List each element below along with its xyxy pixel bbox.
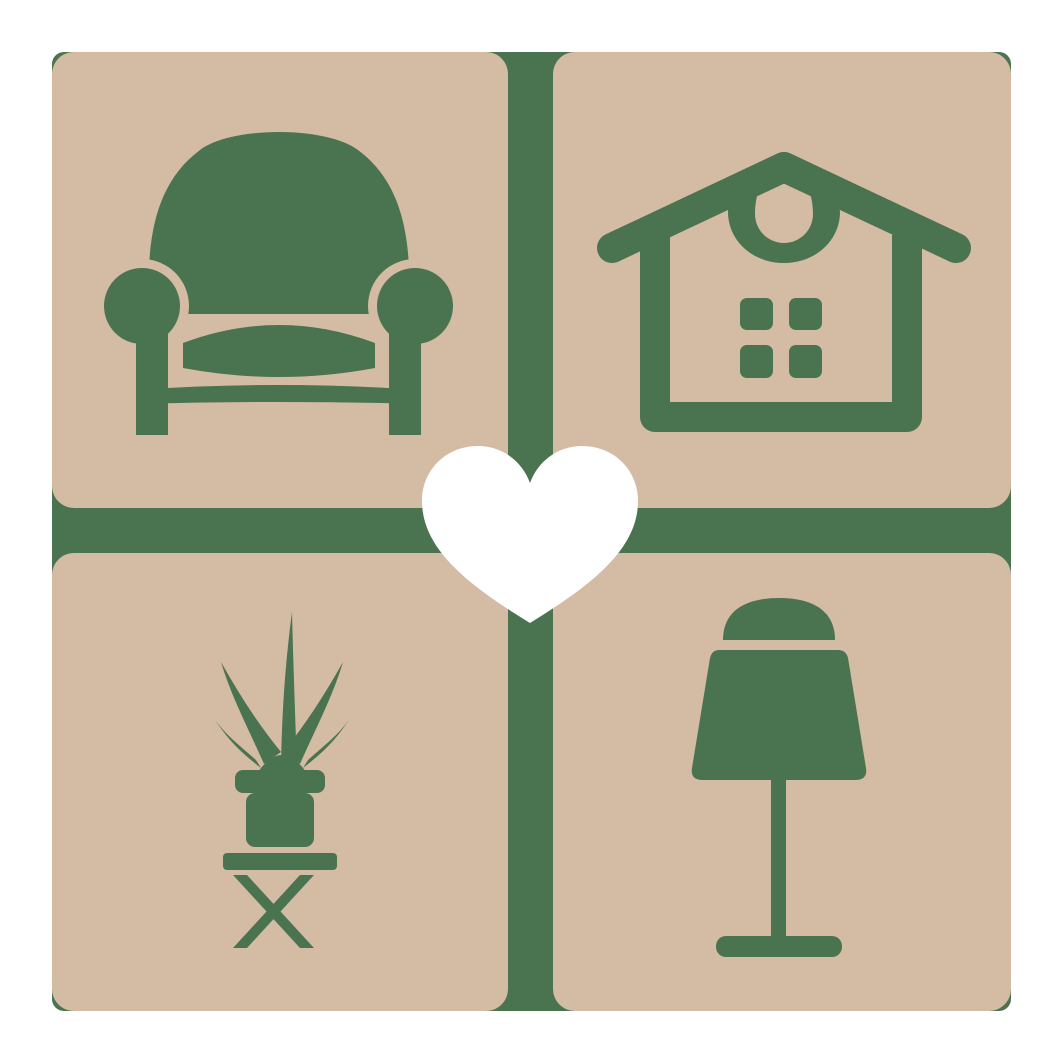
house-window-pane: [789, 298, 822, 330]
chair-leg-left: [136, 306, 168, 435]
chair-leg-right: [389, 306, 421, 435]
plant-pot-rim: [235, 770, 325, 793]
chair-front-rail: [136, 385, 421, 404]
logo-canvas: [0, 0, 1063, 1063]
lamp-stem: [771, 780, 786, 940]
tile-top-right: [553, 52, 1011, 508]
lamp-shade: [692, 650, 867, 780]
logo-artwork: [0, 0, 1063, 1063]
house-window-pane: [740, 345, 773, 378]
house-window-pane: [740, 298, 773, 330]
plant-pot-body: [246, 793, 314, 847]
lamp-base: [716, 936, 842, 957]
plant-table-top: [223, 853, 337, 870]
house-window-pane: [789, 345, 822, 378]
